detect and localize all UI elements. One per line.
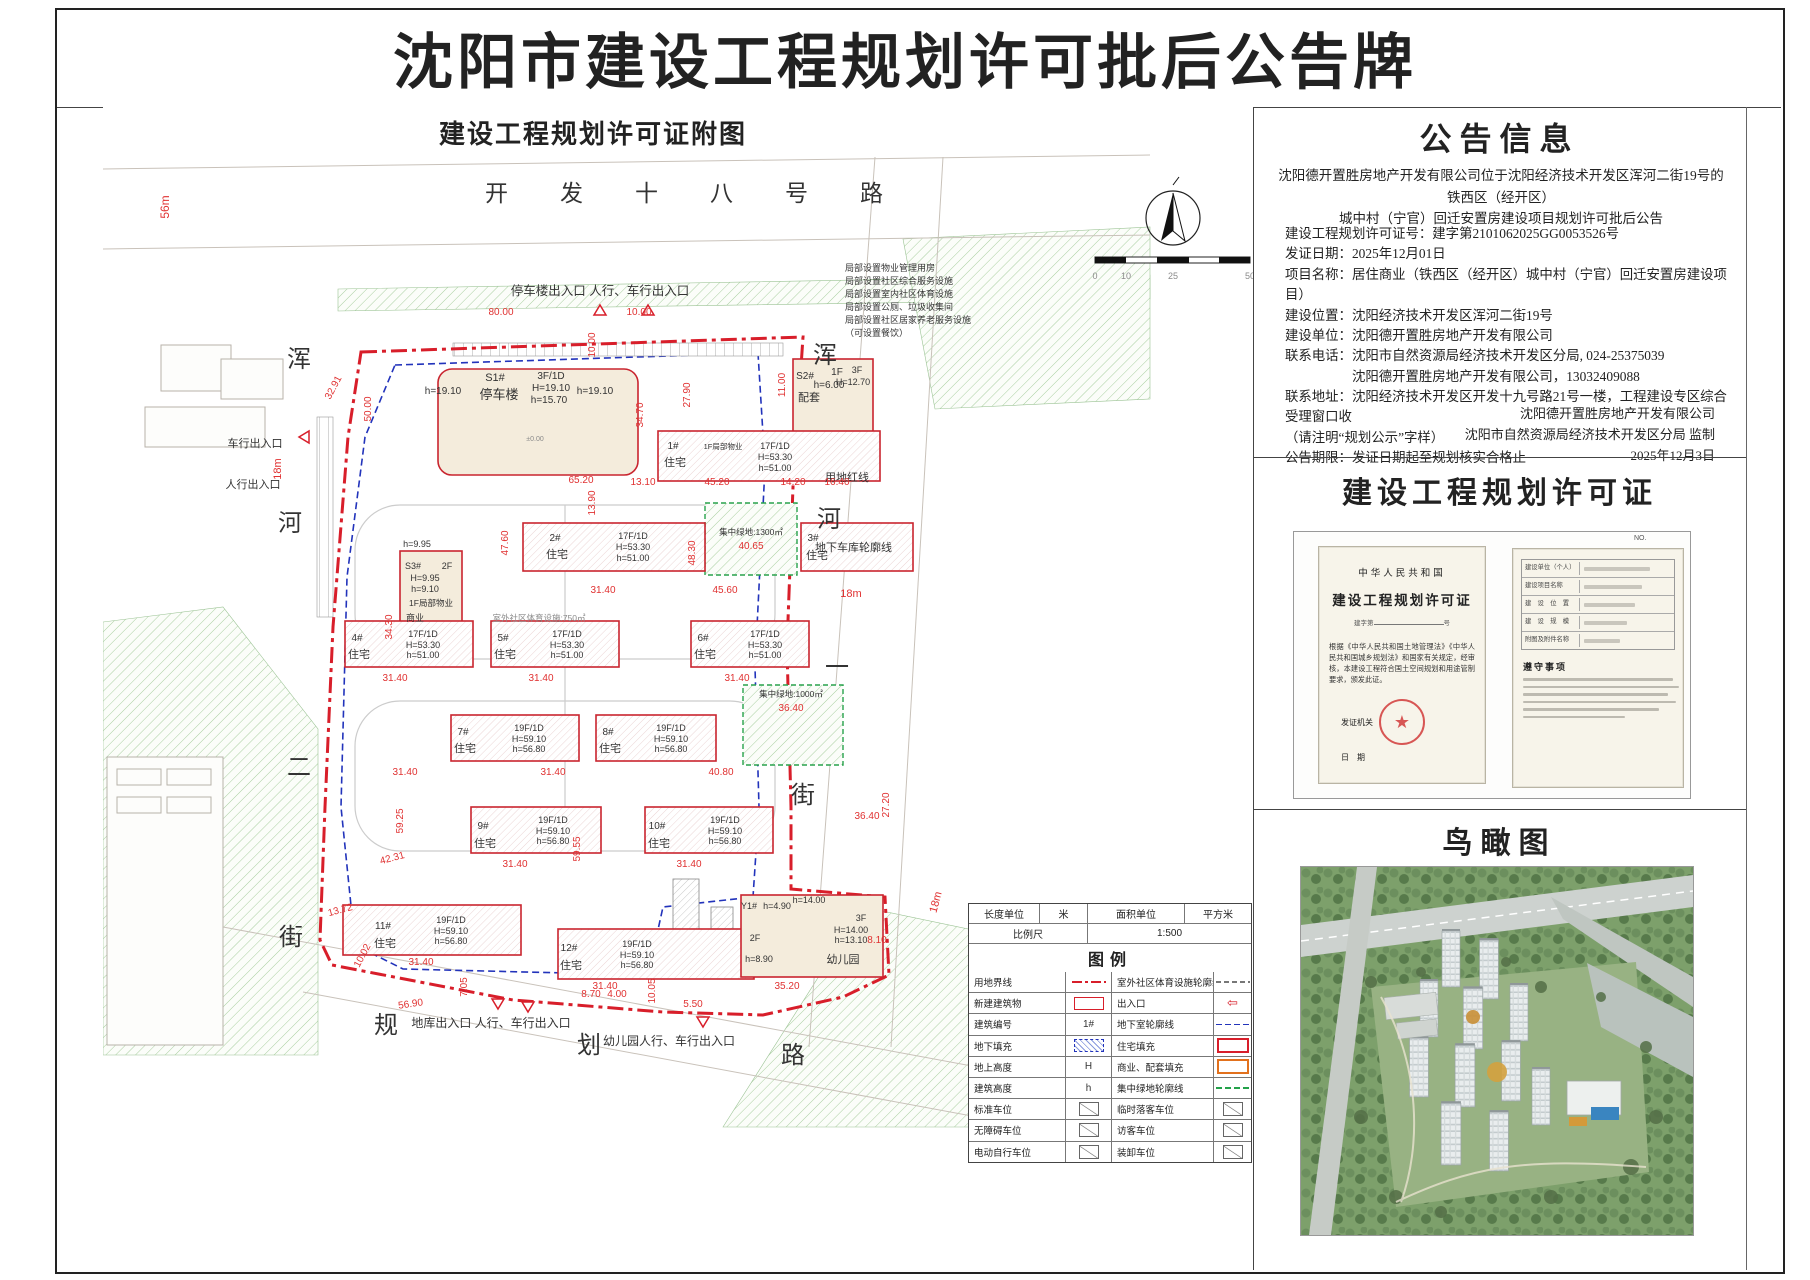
- map-annotation: 19F/1D: [656, 723, 686, 733]
- legend-label: 住宅填充: [1111, 1036, 1213, 1056]
- map-annotation: 27.20: [881, 792, 892, 817]
- legend-table: 长度单位 米 面积单位 平方米 比例尺 1:500 图例 用地界线室外社区体育设…: [968, 903, 1252, 1163]
- scale-label: 比例尺: [969, 924, 1087, 943]
- legend-symbol-cell: [1065, 1142, 1111, 1162]
- map-annotation: 16.40: [824, 477, 849, 488]
- legend-label: 地上高度: [969, 1060, 1065, 1074]
- legend-row: 电动自行车位装卸车位: [969, 1141, 1251, 1162]
- map-annotation: 7.05: [459, 977, 470, 997]
- map-annotation: h=51.00: [551, 650, 584, 660]
- cert-number-suffix: 号: [1444, 620, 1451, 627]
- legend-label: 商业、配套填充: [1111, 1057, 1213, 1077]
- legend-park-icon: [1079, 1102, 1099, 1116]
- map-annotation: h=19.10: [425, 386, 462, 397]
- map-annotation: 31.40: [590, 585, 615, 596]
- map-annotation: Y1#: [741, 901, 757, 911]
- map-annotation: 31.40: [408, 957, 433, 968]
- legend-text-icon: 1#: [1083, 1019, 1094, 1030]
- cert-field-label: 建设项目名称: [1522, 580, 1580, 592]
- map-annotation: 4#: [351, 633, 363, 644]
- legend-rect-red-icon: [1074, 997, 1104, 1010]
- map-annotation: 住宅: [454, 741, 476, 755]
- north-arrow-icon: [1146, 177, 1200, 245]
- map-annotation: 34.30: [384, 614, 395, 639]
- legend-label: 电动自行车位: [969, 1145, 1065, 1159]
- scale-value: 1:500: [1087, 924, 1251, 943]
- cert-field-placeholder: [1584, 567, 1650, 571]
- legend-label: 集中绿地轮廓线: [1111, 1078, 1213, 1098]
- map-annotation: 8.10: [867, 935, 887, 946]
- legend-label: 地下室轮廓线: [1111, 1014, 1213, 1034]
- legend-park-icon: [1079, 1123, 1099, 1137]
- legend-symbol-cell: [1065, 1120, 1111, 1140]
- cert-field-row: 建 设 规 模: [1522, 613, 1674, 631]
- permit-section-title: 建设工程规划许可证: [1253, 468, 1746, 512]
- map-annotation: 局部设置物业管理用房: [845, 262, 935, 273]
- map-annotation: 室外社区体育设施:750㎡: [492, 613, 586, 623]
- map-annotation: 31.40: [382, 673, 407, 684]
- map-annotation: 31.40: [502, 859, 527, 870]
- legend-symbol-cell: [1213, 1120, 1251, 1140]
- map-annotation: 59.55: [572, 836, 583, 861]
- map-annotation: H=19.10: [532, 383, 571, 394]
- map-annotation: 9#: [477, 821, 489, 832]
- map-annotation: 1#: [667, 441, 679, 452]
- map-annotation: 1F局部物业: [409, 598, 453, 608]
- map-annotation: 路: [781, 1042, 805, 1069]
- map-annotation: 停车楼出入口 人行、车行出入口: [511, 283, 689, 298]
- section-divider-2: [1253, 809, 1746, 810]
- map-annotation: 59.25: [395, 808, 406, 833]
- signature-line: 沈阳德开置胜房地产开发有限公司: [1285, 404, 1715, 425]
- map-annotation: 17F/1D: [760, 441, 790, 451]
- legend-symbol-cell: ⇦: [1213, 993, 1251, 1013]
- legend-label: 临时落客车位: [1111, 1099, 1213, 1119]
- legend-label: 访客车位: [1111, 1120, 1213, 1140]
- map-annotation: 局部设置室内社区体育设施: [845, 288, 953, 299]
- signature-line: 2025年12月3日: [1285, 446, 1715, 467]
- map-annotation: 配套: [798, 391, 820, 404]
- notice-line: 建设工程规划许可证号：建字第2101062025GG0053526号: [1285, 224, 1737, 244]
- legend-row: 用地界线室外社区体育设施轮廓线: [969, 972, 1251, 992]
- map-annotation: 街: [279, 924, 303, 951]
- map-annotation: h=56.80: [655, 744, 688, 754]
- map-annotation: 住宅: [694, 647, 716, 661]
- legend-label: 新建建筑物: [969, 996, 1065, 1010]
- map-annotation: h=14.00: [793, 895, 826, 905]
- legend-row: 无障碍车位访客车位: [969, 1119, 1251, 1140]
- announcement-board: 沈阳市建设工程规划许可批后公告牌: [0, 0, 1810, 1280]
- legend-hatch-blue-icon: [1074, 1039, 1104, 1052]
- legend-line-blue-dash-icon: [1216, 1024, 1250, 1026]
- map-annotation: 住宅: [806, 548, 828, 562]
- map-annotation: H=59.10: [620, 950, 654, 960]
- map-annotation: H=53.30: [406, 640, 440, 650]
- legend-row: 建筑编号1#地下室轮廓线: [969, 1013, 1251, 1034]
- map-annotation: h=51.00: [749, 650, 782, 660]
- map-annotation: 10#: [649, 821, 666, 832]
- rule-placeholder: [1523, 716, 1625, 719]
- legend-symbol-cell: [1213, 1057, 1251, 1077]
- cert-fields-table: 建设单位（个人）建设项目名称建 设 位 置建 设 规 模附图及附件名称: [1521, 559, 1675, 650]
- cert-number-prefix: 建字第: [1354, 620, 1374, 627]
- notice-line: 联系电话：沈阳市自然资源局经济技术开发区分局, 024-25375039: [1285, 346, 1737, 366]
- permit-certificate-front: 中华人民共和国 建设工程规划许可证 建字第号 根据《中华人民共和国土地管理法》《…: [1318, 546, 1486, 784]
- map-annotation: 19F/1D: [710, 815, 740, 825]
- map-annotation: 12#: [561, 943, 578, 954]
- map-annotation: h=56.80: [537, 836, 570, 846]
- map-annotation: H=12.70: [836, 377, 870, 387]
- map-annotation: 2F: [442, 561, 453, 571]
- map-annotation: 浑: [813, 342, 837, 369]
- map-annotation: 二: [287, 754, 311, 781]
- map-annotation: 31.40: [392, 767, 417, 778]
- map-annotation: h=51.00: [759, 463, 792, 473]
- notice-line: 发证日期：2025年12月01日: [1285, 244, 1737, 264]
- map-annotation: 42.31: [379, 850, 406, 867]
- map-annotation: 2#: [549, 533, 561, 544]
- map-annotation: 1F局部物业: [704, 441, 743, 451]
- map-annotation: 50.00: [363, 396, 374, 421]
- map-annotation: 一: [825, 654, 849, 681]
- cert-field-label: 建 设 位 置: [1522, 598, 1580, 610]
- map-annotation: h=51.00: [407, 650, 440, 660]
- signature-line: 沈阳市自然资源局经济技术开发区分局 监制: [1285, 425, 1715, 446]
- legend-row: 标准车位临时落客车位: [969, 1098, 1251, 1119]
- map-annotation: h=19.10: [577, 386, 614, 397]
- legend-symbol-cell: [1065, 1036, 1111, 1056]
- legend-park-icon: [1079, 1145, 1099, 1159]
- cert-country: 中华人民共和国: [1319, 565, 1485, 579]
- cert-field-label: 附图及附件名称: [1522, 634, 1580, 646]
- map-annotation: h=51.00: [617, 553, 650, 563]
- map-annotation: 5.50: [683, 999, 703, 1010]
- notice-line: 建设单位：沈阳德开置胜房地产开发有限公司: [1285, 326, 1737, 346]
- map-annotation: 幼儿园人行、车行出入口: [603, 1033, 735, 1048]
- map-annotation: 19F/1D: [622, 939, 652, 949]
- cert-field-row: 建设单位（个人）: [1522, 560, 1674, 577]
- map-annotation: 40.65: [738, 541, 763, 552]
- legend-label: 标准车位: [969, 1102, 1065, 1116]
- legend-label: 建筑编号: [969, 1017, 1065, 1031]
- map-annotation: 6#: [697, 633, 709, 644]
- legend-symbol-cell: [1065, 993, 1111, 1013]
- map-annotation: 车行出入口: [228, 436, 283, 450]
- legend-symbol-cell: [1213, 1014, 1251, 1034]
- map-annotation: 开发十八号路: [485, 180, 935, 206]
- legend-symbol-cell: [1213, 1078, 1251, 1098]
- map-annotation: 56.90: [397, 997, 424, 1011]
- legend-row: 地上高度H商业、配套填充: [969, 1056, 1251, 1077]
- site-plan-title: 建设工程规划许可证附图: [103, 114, 1083, 151]
- map-annotation: h=8.90: [745, 954, 773, 964]
- map-annotation: 幼儿园: [827, 953, 860, 966]
- legend-label: 建筑高度: [969, 1081, 1065, 1095]
- building-2: [523, 523, 705, 571]
- map-annotation: 17F/1D: [618, 531, 648, 541]
- cert-no-label: NO.: [1634, 535, 1646, 542]
- map-annotation: 集中绿地:1300㎡: [719, 527, 783, 537]
- map-annotation: 35.20: [774, 981, 799, 992]
- map-annotation: 住宅: [599, 741, 621, 755]
- legend-text-icon: h: [1086, 1083, 1092, 1094]
- map-annotation: 7#: [457, 727, 469, 738]
- panel-divider: [1253, 107, 1254, 1270]
- map-annotation: S1#: [485, 372, 505, 384]
- map-annotation: h=56.80: [513, 744, 546, 754]
- map-annotation: 45.60: [712, 585, 737, 596]
- notice-intro-line: 沈阳德开置胜房地产开发有限公司位于沈阳经济技术开发区浑河二街19号的铁西区（经开…: [1278, 165, 1724, 208]
- legend-label: 用地界线: [969, 975, 1065, 989]
- cert-rules-title: 遵守事项: [1523, 660, 1683, 673]
- entrance-arrow-icon: ⇦: [1227, 997, 1238, 1009]
- map-annotation: 0: [1092, 271, 1097, 281]
- cert-issuer-label: 发证机关: [1341, 717, 1373, 728]
- map-annotation: H=59.10: [434, 926, 468, 936]
- map-annotation: h=13.10: [835, 935, 868, 945]
- legend-row: 新建建筑物出入口⇦: [969, 992, 1251, 1013]
- rule-placeholder: [1523, 678, 1673, 681]
- map-annotation: 10: [1121, 271, 1131, 281]
- map-annotation: 住宅: [546, 547, 568, 561]
- aerial-render-svg: [1301, 867, 1693, 1235]
- map-annotation: 划: [577, 1032, 601, 1059]
- notice-line: 沈阳德开置胜房地产开发有限公司，13032409088: [1285, 367, 1737, 387]
- cert-number-blank: [1374, 618, 1444, 625]
- map-annotation: 8.70: [581, 989, 601, 1000]
- legend-line-green-dash-icon: [1216, 1087, 1250, 1089]
- map-annotation: ±0.00: [526, 436, 544, 443]
- legend-symbol-cell: [1065, 972, 1111, 992]
- map-annotation: 局部设置社区综合服务设施: [845, 275, 953, 286]
- map-annotation: 局部设置公厕、垃圾收集间: [845, 301, 953, 312]
- map-annotation: 住宅: [648, 836, 670, 850]
- map-annotation: 集中绿地:1000㎡: [759, 689, 823, 699]
- section-divider: [1253, 457, 1746, 458]
- legend-park-icon: [1223, 1123, 1243, 1137]
- map-annotation: 13.10: [630, 477, 655, 488]
- map-annotation: 11.00: [777, 372, 788, 397]
- rule-placeholder: [1523, 701, 1676, 704]
- map-annotation: 3F: [856, 913, 867, 923]
- legend-label: 地下填充: [969, 1039, 1065, 1053]
- map-annotation: 50: [1245, 271, 1253, 281]
- cert-field-row: 附图及附件名称: [1522, 631, 1674, 649]
- map-annotation: 街: [791, 782, 815, 809]
- legend-symbol-cell: [1213, 1142, 1251, 1162]
- map-annotation: 住宅: [560, 958, 582, 972]
- map-annotation: 河: [278, 510, 302, 537]
- map-annotation: H=14.00: [834, 925, 868, 935]
- map-annotation: 19F/1D: [514, 723, 544, 733]
- map-annotation: 3#: [807, 533, 819, 544]
- map-annotation: h=56.80: [435, 936, 468, 946]
- map-annotation: 3F/1D: [537, 371, 564, 382]
- map-annotation: S3#: [405, 561, 421, 571]
- legend-line-red-dashdot-icon: [1072, 981, 1106, 984]
- map-annotation: 31.40: [528, 673, 553, 684]
- map-annotation: 11#: [375, 921, 391, 932]
- map-annotation: 4.00: [607, 989, 627, 1000]
- map-annotation: 地库出入口 人行、车行出入口: [411, 1015, 570, 1030]
- permit-panel: 中华人民共和国 建设工程规划许可证 建字第号 根据《中华人民共和国土地管理法》《…: [1293, 531, 1691, 799]
- map-annotation: h=9.95: [403, 539, 431, 549]
- map-annotation: H=9.95: [410, 573, 439, 583]
- legend-symbol-cell: H: [1065, 1057, 1111, 1077]
- map-annotation: 10.05: [647, 978, 658, 1003]
- map-annotation: h=56.80: [621, 960, 654, 970]
- map-annotation: H=53.30: [616, 542, 650, 552]
- map-annotation: 80.00: [488, 307, 513, 318]
- map-annotation: h=4.90: [763, 901, 791, 911]
- permit-certificate-back: 建设单位（个人）建设项目名称建 设 位 置建 设 规 模附图及附件名称 遵守事项: [1512, 548, 1684, 788]
- notice-line: 建设位置：沈阳经济技术开发区浑河二街19号: [1285, 306, 1737, 326]
- legend-park-icon: [1223, 1102, 1243, 1116]
- map-annotation: 65.20: [568, 475, 593, 486]
- parking-strip-left: [317, 417, 333, 617]
- legend-scale-row: 比例尺 1:500: [969, 923, 1251, 943]
- map-annotation: H=59.10: [512, 734, 546, 744]
- map-annotation: 住宅: [474, 836, 496, 850]
- legend-rect-orange-icon: [1217, 1059, 1249, 1074]
- map-annotation: 局部设置社区居家养老服务设施: [845, 314, 971, 325]
- map-annotation: 浑: [287, 346, 311, 373]
- map-annotation: H=59.10: [654, 734, 688, 744]
- map-annotation: 47.60: [500, 530, 511, 555]
- cert-field-row: 建 设 位 置: [1522, 595, 1674, 613]
- rule-placeholder: [1523, 708, 1659, 711]
- len-unit-value: 米: [1039, 904, 1087, 923]
- map-annotation: 34.70: [635, 402, 646, 427]
- legend-park-icon: [1223, 1145, 1243, 1159]
- map-annotation: 停车楼: [479, 387, 518, 402]
- legend-units-row: 长度单位 米 面积单位 平方米: [969, 904, 1251, 923]
- legend-text-icon: H: [1085, 1061, 1092, 1072]
- notice-intro: 沈阳德开置胜房地产开发有限公司位于沈阳经济技术开发区浑河二街19号的铁西区（经开…: [1278, 165, 1724, 230]
- area-unit-value: 平方米: [1184, 904, 1251, 923]
- len-unit-label: 长度单位: [969, 904, 1039, 923]
- rule-placeholder: [1523, 693, 1668, 696]
- parking-strip-top: [453, 343, 783, 356]
- map-annotation: 规: [374, 1012, 398, 1039]
- map-annotation: 14.20: [780, 477, 805, 488]
- legend-symbol-cell: h: [1065, 1078, 1111, 1098]
- map-annotation: 19F/1D: [538, 815, 568, 825]
- cert-body-text: 根据《中华人民共和国土地管理法》《中华人民共和国城乡规划法》和国家有关规定，经审…: [1329, 641, 1475, 686]
- legend-symbol-cell: 1#: [1065, 1014, 1111, 1034]
- map-annotation: 10.00: [626, 307, 651, 318]
- map-annotation: 17F/1D: [750, 629, 780, 639]
- cert-title: 建设工程规划许可证: [1319, 589, 1485, 609]
- map-annotation: 48.30: [687, 540, 698, 565]
- cert-field-row: 建设项目名称: [1522, 577, 1674, 595]
- map-annotation: 2F: [750, 933, 761, 943]
- map-annotation: 5#: [497, 633, 509, 644]
- map-annotation: 商业: [406, 612, 424, 623]
- map-annotation: 25: [1168, 271, 1178, 281]
- map-annotation: 31.40: [540, 767, 565, 778]
- legend-symbol-cell: [1213, 972, 1251, 992]
- legend-symbol-cell: [1065, 1099, 1111, 1119]
- map-annotation: 19F/1D: [436, 915, 466, 925]
- map-annotation: 8#: [602, 727, 614, 738]
- map-annotation: 36.40: [778, 703, 803, 714]
- map-annotation: h=9.10: [411, 584, 439, 594]
- cert-field-placeholder: [1584, 621, 1627, 625]
- map-annotation: 18m: [840, 588, 861, 600]
- margin-divider: [1746, 107, 1747, 1270]
- map-annotation: H=53.30: [550, 640, 584, 650]
- map-annotation: 27.90: [682, 382, 693, 407]
- map-annotation: 17F/1D: [552, 629, 582, 639]
- cert-field-placeholder: [1584, 585, 1642, 589]
- map-annotation: 住宅: [494, 647, 516, 661]
- map-annotation: （可设置餐饮）: [845, 327, 908, 338]
- map-annotation: 河: [817, 506, 841, 533]
- aerial-view-image: [1300, 866, 1694, 1236]
- map-annotation: 18m: [272, 458, 284, 479]
- map-annotation: 住宅: [664, 455, 686, 469]
- legend-label: 无障碍车位: [969, 1123, 1065, 1137]
- cert-field-label: 建设单位（个人）: [1522, 562, 1580, 574]
- map-annotation: H=53.30: [748, 640, 782, 650]
- legend-row: 地下填充住宅填充: [969, 1035, 1251, 1056]
- cert-field-placeholder: [1584, 603, 1635, 607]
- map-annotation: 32.91: [323, 374, 345, 402]
- aerial-view-title: 鸟瞰图: [1253, 818, 1746, 862]
- map-annotation: 13.90: [587, 490, 598, 515]
- cert-date-label: 日 期: [1341, 752, 1365, 763]
- map-annotation: 40.80: [708, 767, 733, 778]
- building-12: [558, 929, 754, 979]
- map-annotation: H=59.10: [708, 826, 742, 836]
- map-annotation: 3F: [852, 365, 863, 375]
- legend-symbol-cell: [1213, 1036, 1251, 1056]
- page-title: 沈阳市建设工程规划许可批后公告牌: [55, 14, 1810, 101]
- rule-placeholder: [1523, 686, 1679, 689]
- cert-field-label: 建 设 规 模: [1522, 616, 1580, 628]
- cert-issuer-row: 发证机关 ★: [1341, 699, 1425, 745]
- cert-field-placeholder: [1584, 639, 1620, 643]
- map-annotation: H=53.30: [758, 452, 792, 462]
- map-annotation: H=59.10: [536, 826, 570, 836]
- legend-label: 室外社区体育设施轮廓线: [1111, 972, 1213, 992]
- legend-body: 用地界线室外社区体育设施轮廓线新建建筑物出入口⇦建筑编号1#地下室轮廓线地下填充…: [969, 972, 1251, 1162]
- map-annotation: 18m: [928, 890, 945, 914]
- map-annotation: 45.20: [704, 477, 729, 488]
- area-unit-label: 面积单位: [1087, 904, 1184, 923]
- cert-number-line: 建字第号: [1319, 617, 1485, 627]
- legend-row: 建筑高度h集中绿地轮廓线: [969, 1077, 1251, 1098]
- map-annotation: 56m: [158, 195, 172, 218]
- notice-title: 公告信息: [1253, 114, 1746, 160]
- map-annotation: 17F/1D: [408, 629, 438, 639]
- aerial-kindergarten: [1567, 1081, 1621, 1126]
- legend-line-gray-dash-icon: [1216, 981, 1250, 983]
- legend-rect-red-thick-icon: [1217, 1038, 1249, 1053]
- map-annotation: 31.40: [676, 859, 701, 870]
- map-annotation: 10.00: [587, 332, 598, 357]
- legend-label: 装卸车位: [1111, 1142, 1213, 1162]
- map-annotation: S2#: [796, 371, 814, 382]
- map-annotation: 36.40: [854, 811, 879, 822]
- map-annotation: h=15.70: [531, 395, 568, 406]
- legend-title: 图例: [969, 943, 1251, 972]
- green-space-1300: [705, 503, 797, 575]
- scale-bar: [1095, 257, 1250, 263]
- legend-label: 出入口: [1111, 993, 1213, 1013]
- official-seal-icon: ★: [1379, 699, 1425, 745]
